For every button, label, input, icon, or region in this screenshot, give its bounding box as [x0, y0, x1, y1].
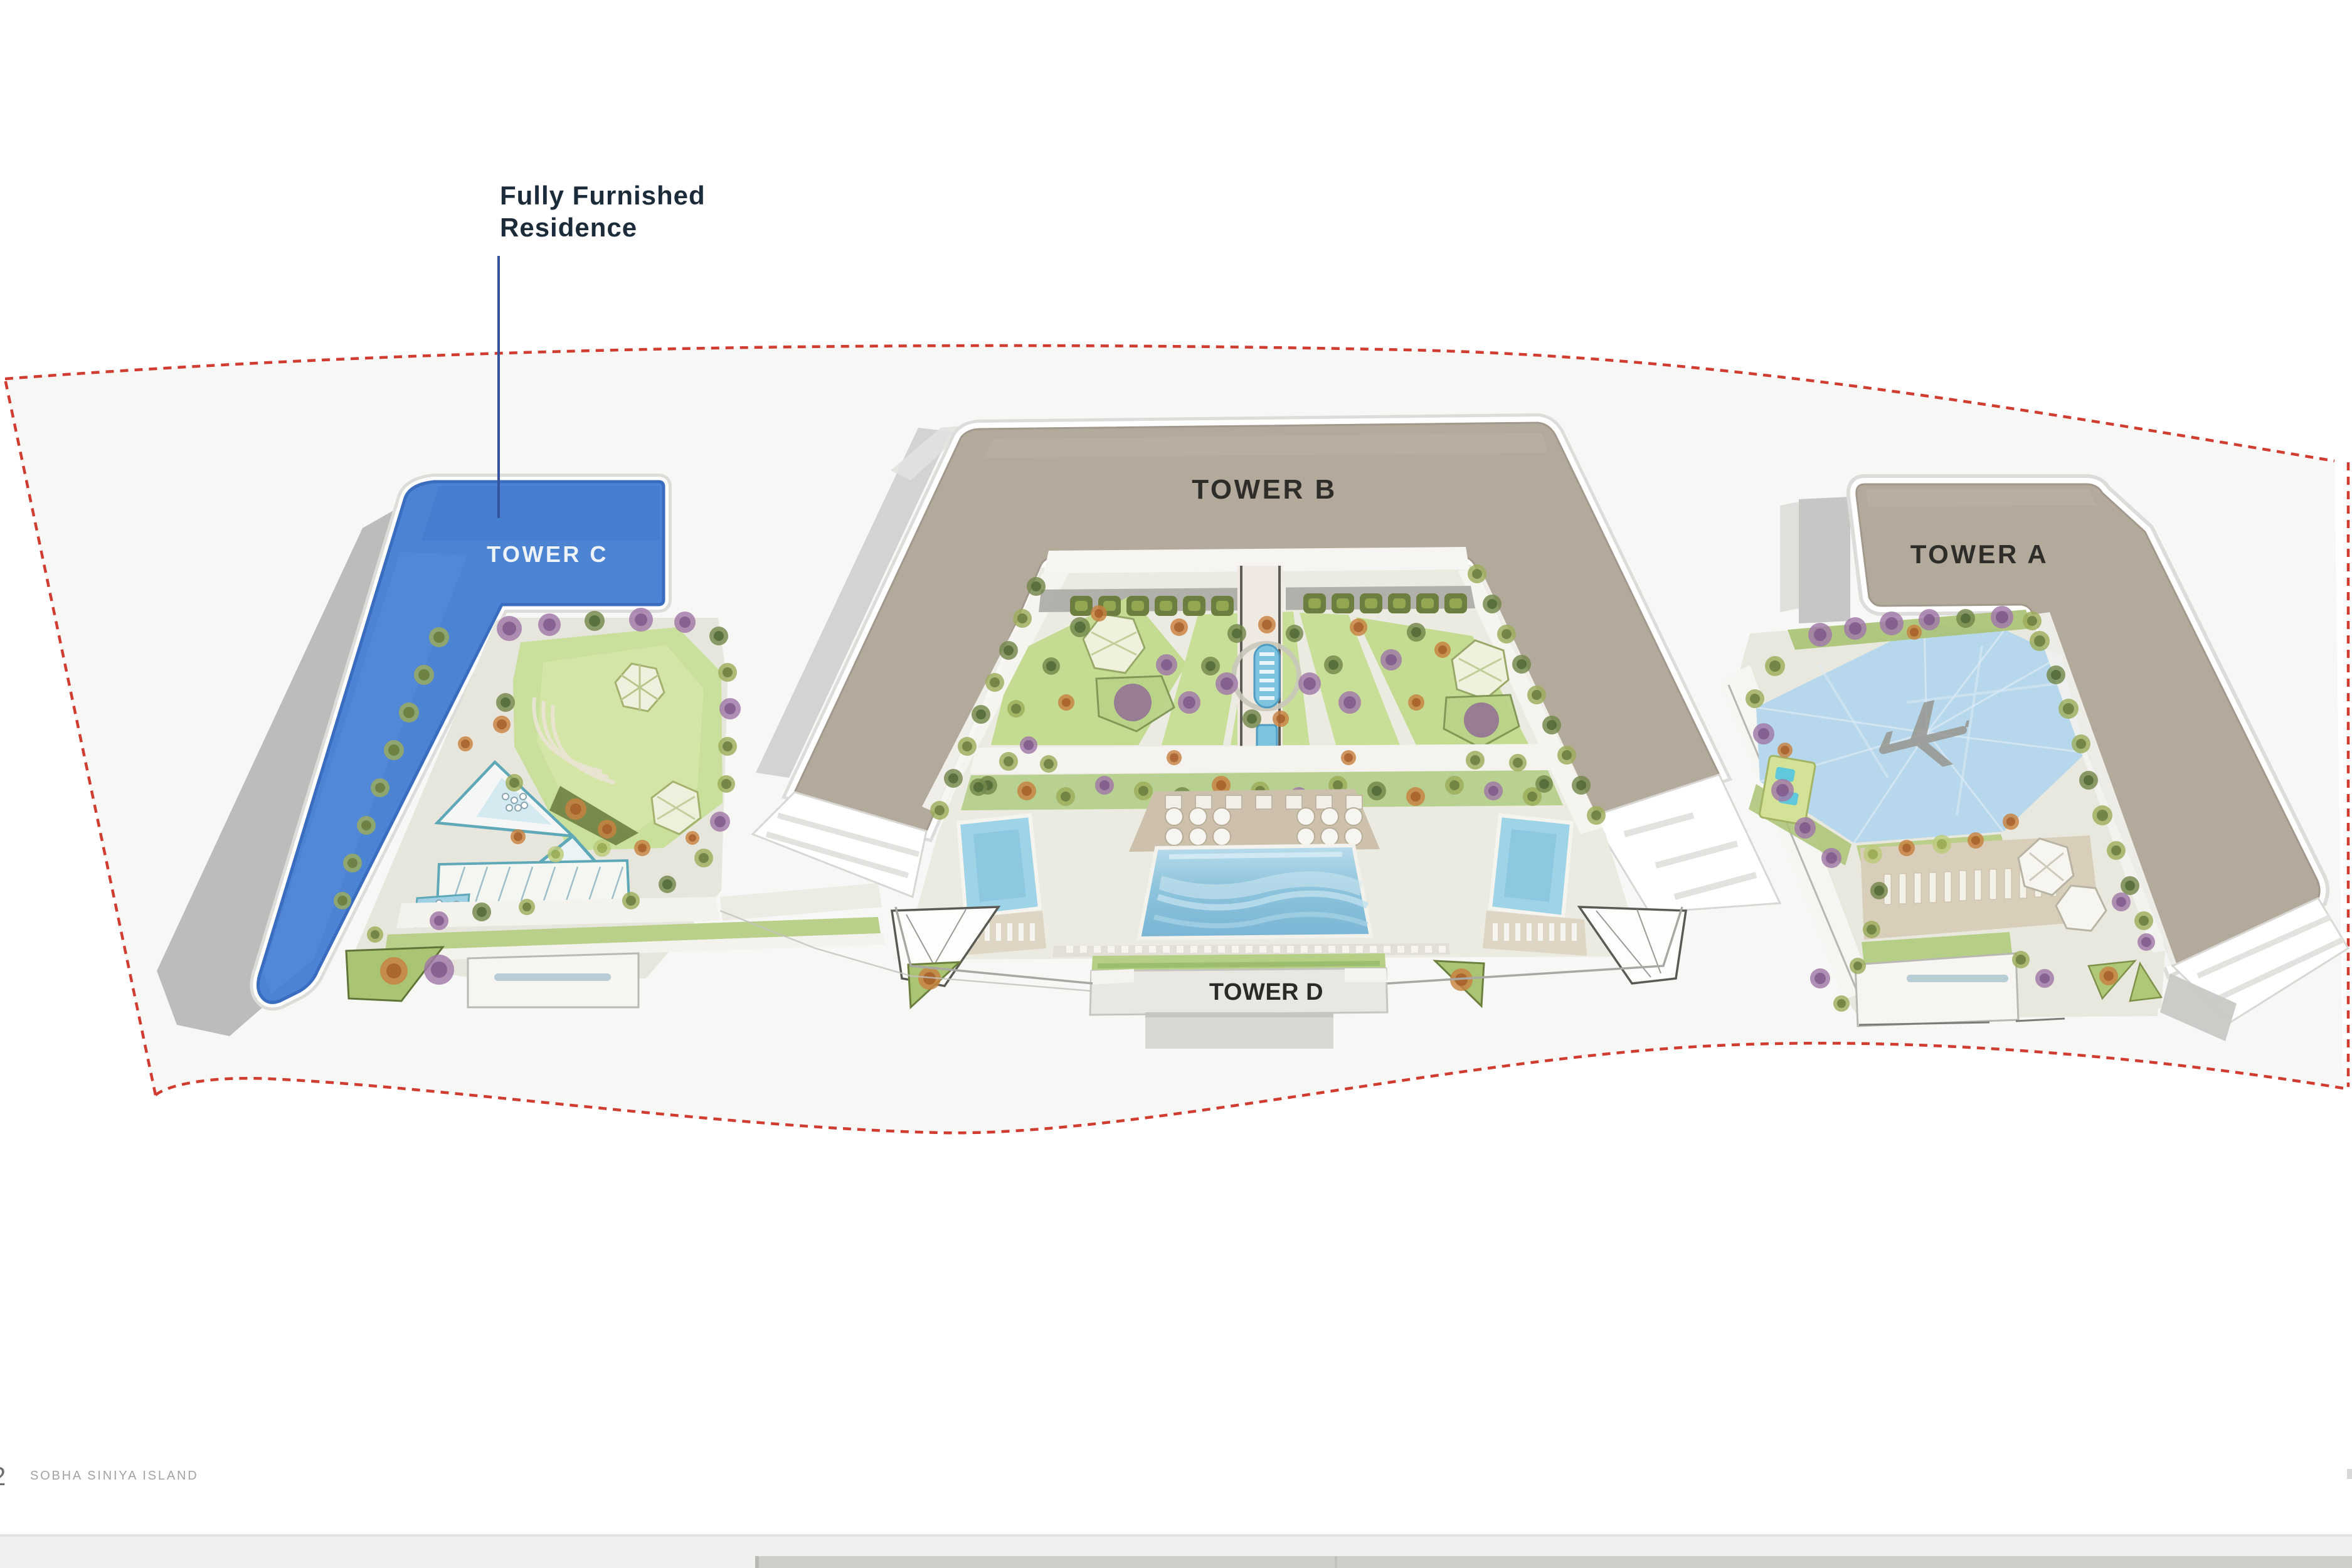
svg-text:TOWER D: TOWER D	[1209, 979, 1323, 1005]
svg-text:TOWER A: TOWER A	[1910, 539, 2049, 569]
svg-text:SOBHA SINIYA ISLAND: SOBHA SINIYA ISLAND	[30, 1469, 198, 1483]
svg-text:Residence: Residence	[500, 213, 637, 242]
svg-text:2: 2	[0, 1461, 6, 1491]
svg-text:TOWER B: TOWER B	[1192, 474, 1337, 505]
svg-text:TOWER C: TOWER C	[487, 541, 608, 567]
svg-text:Fully Furnished: Fully Furnished	[500, 181, 706, 210]
